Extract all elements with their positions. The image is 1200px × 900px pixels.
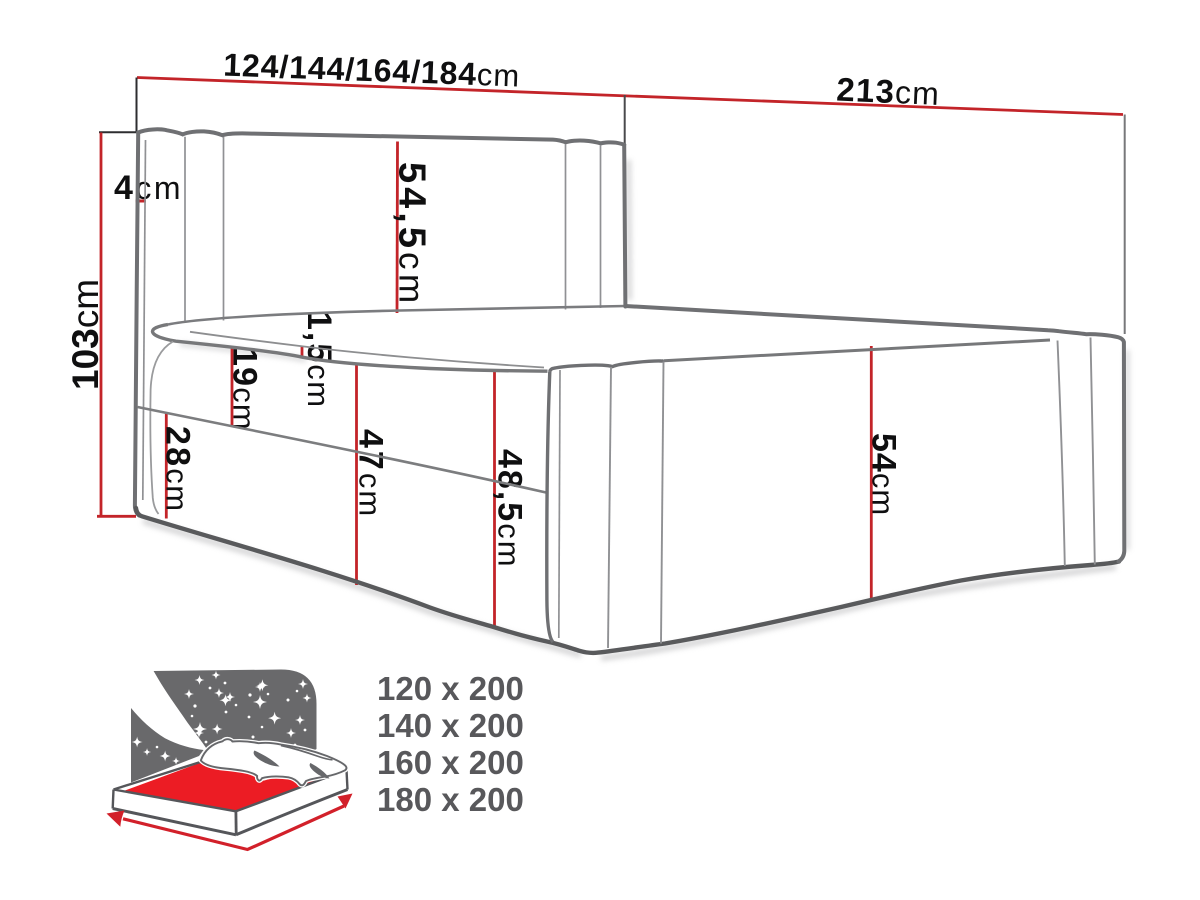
svg-text:213cm: 213cm xyxy=(836,71,941,112)
svg-text:19cm: 19cm xyxy=(226,347,264,431)
svg-text:103cm: 103cm xyxy=(65,279,106,390)
svg-text:120 x 200: 120 x 200 xyxy=(377,670,524,707)
svg-text:4cm: 4cm xyxy=(114,169,183,207)
svg-text:140 x 200: 140 x 200 xyxy=(377,707,524,744)
svg-text:48,5cm: 48,5cm xyxy=(491,449,529,569)
svg-text:160 x 200: 160 x 200 xyxy=(377,744,524,781)
svg-text:54cm: 54cm xyxy=(864,433,902,516)
svg-text:54,5cm: 54,5cm xyxy=(391,162,433,308)
svg-text:180 x 200: 180 x 200 xyxy=(377,781,524,818)
svg-text:28cm: 28cm xyxy=(159,426,197,513)
svg-text:47cm: 47cm xyxy=(352,429,390,518)
